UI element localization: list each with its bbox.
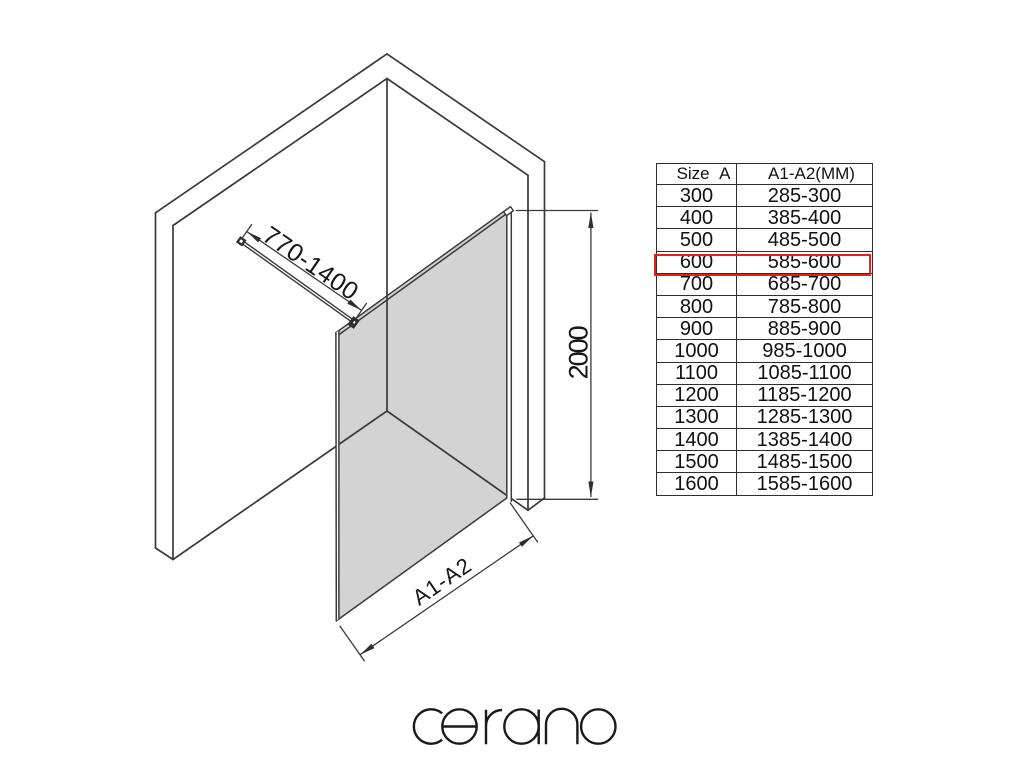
svg-text:2000: 2000 <box>563 326 593 379</box>
svg-text:770-1400: 770-1400 <box>257 221 363 306</box>
